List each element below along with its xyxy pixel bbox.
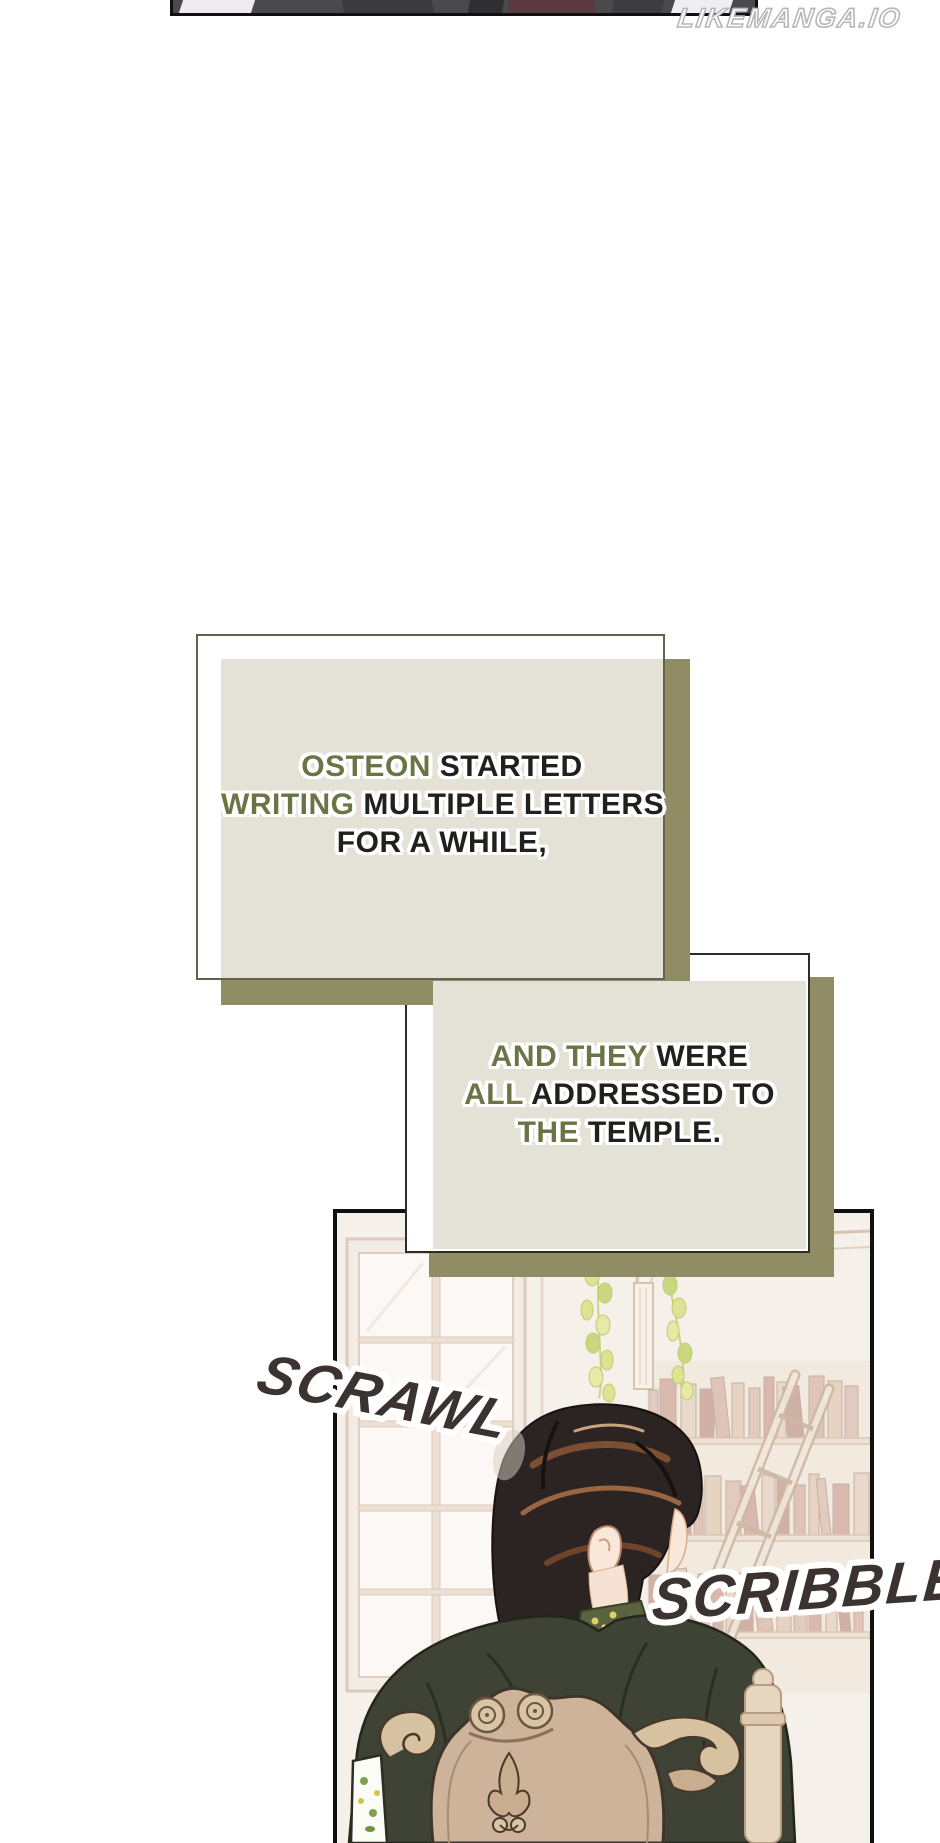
narration-text-2: AND THEY WERE ALL ADDRESSED TO THE TEMPL… [433,1038,806,1152]
narration-line: OSTEON STARTED [221,748,663,786]
room-panel-art [337,1213,870,1843]
strip-shape-dark3 [611,0,664,13]
chair-arm-post-right [741,1669,785,1843]
strip-highlight-left [179,0,255,13]
narration-line: WRITING MULTIPLE LETTERS [221,786,663,824]
strip-shape-maroon [508,0,596,13]
narration-line: THE TEMPLE. [433,1114,806,1152]
narration-line: ALL ADDRESSED TO [433,1076,806,1114]
room-scene-panel [333,1209,874,1843]
narration-line: FOR A WHILE, [221,824,663,862]
narration-text-1: OSTEON STARTED WRITING MULTIPLE LETTERS … [221,748,663,862]
strip-shape-dark1 [342,0,435,13]
comic-reader-page: LIKEMANGA.IO [0,0,940,1843]
site-watermark: LIKEMANGA.IO [676,3,904,34]
strip-shape-dark2 [468,0,504,13]
top-cropped-panel-fragment [170,0,758,16]
chair-armrest-scroll-left [380,1712,436,1757]
narration-line: AND THEY WERE [433,1038,806,1076]
